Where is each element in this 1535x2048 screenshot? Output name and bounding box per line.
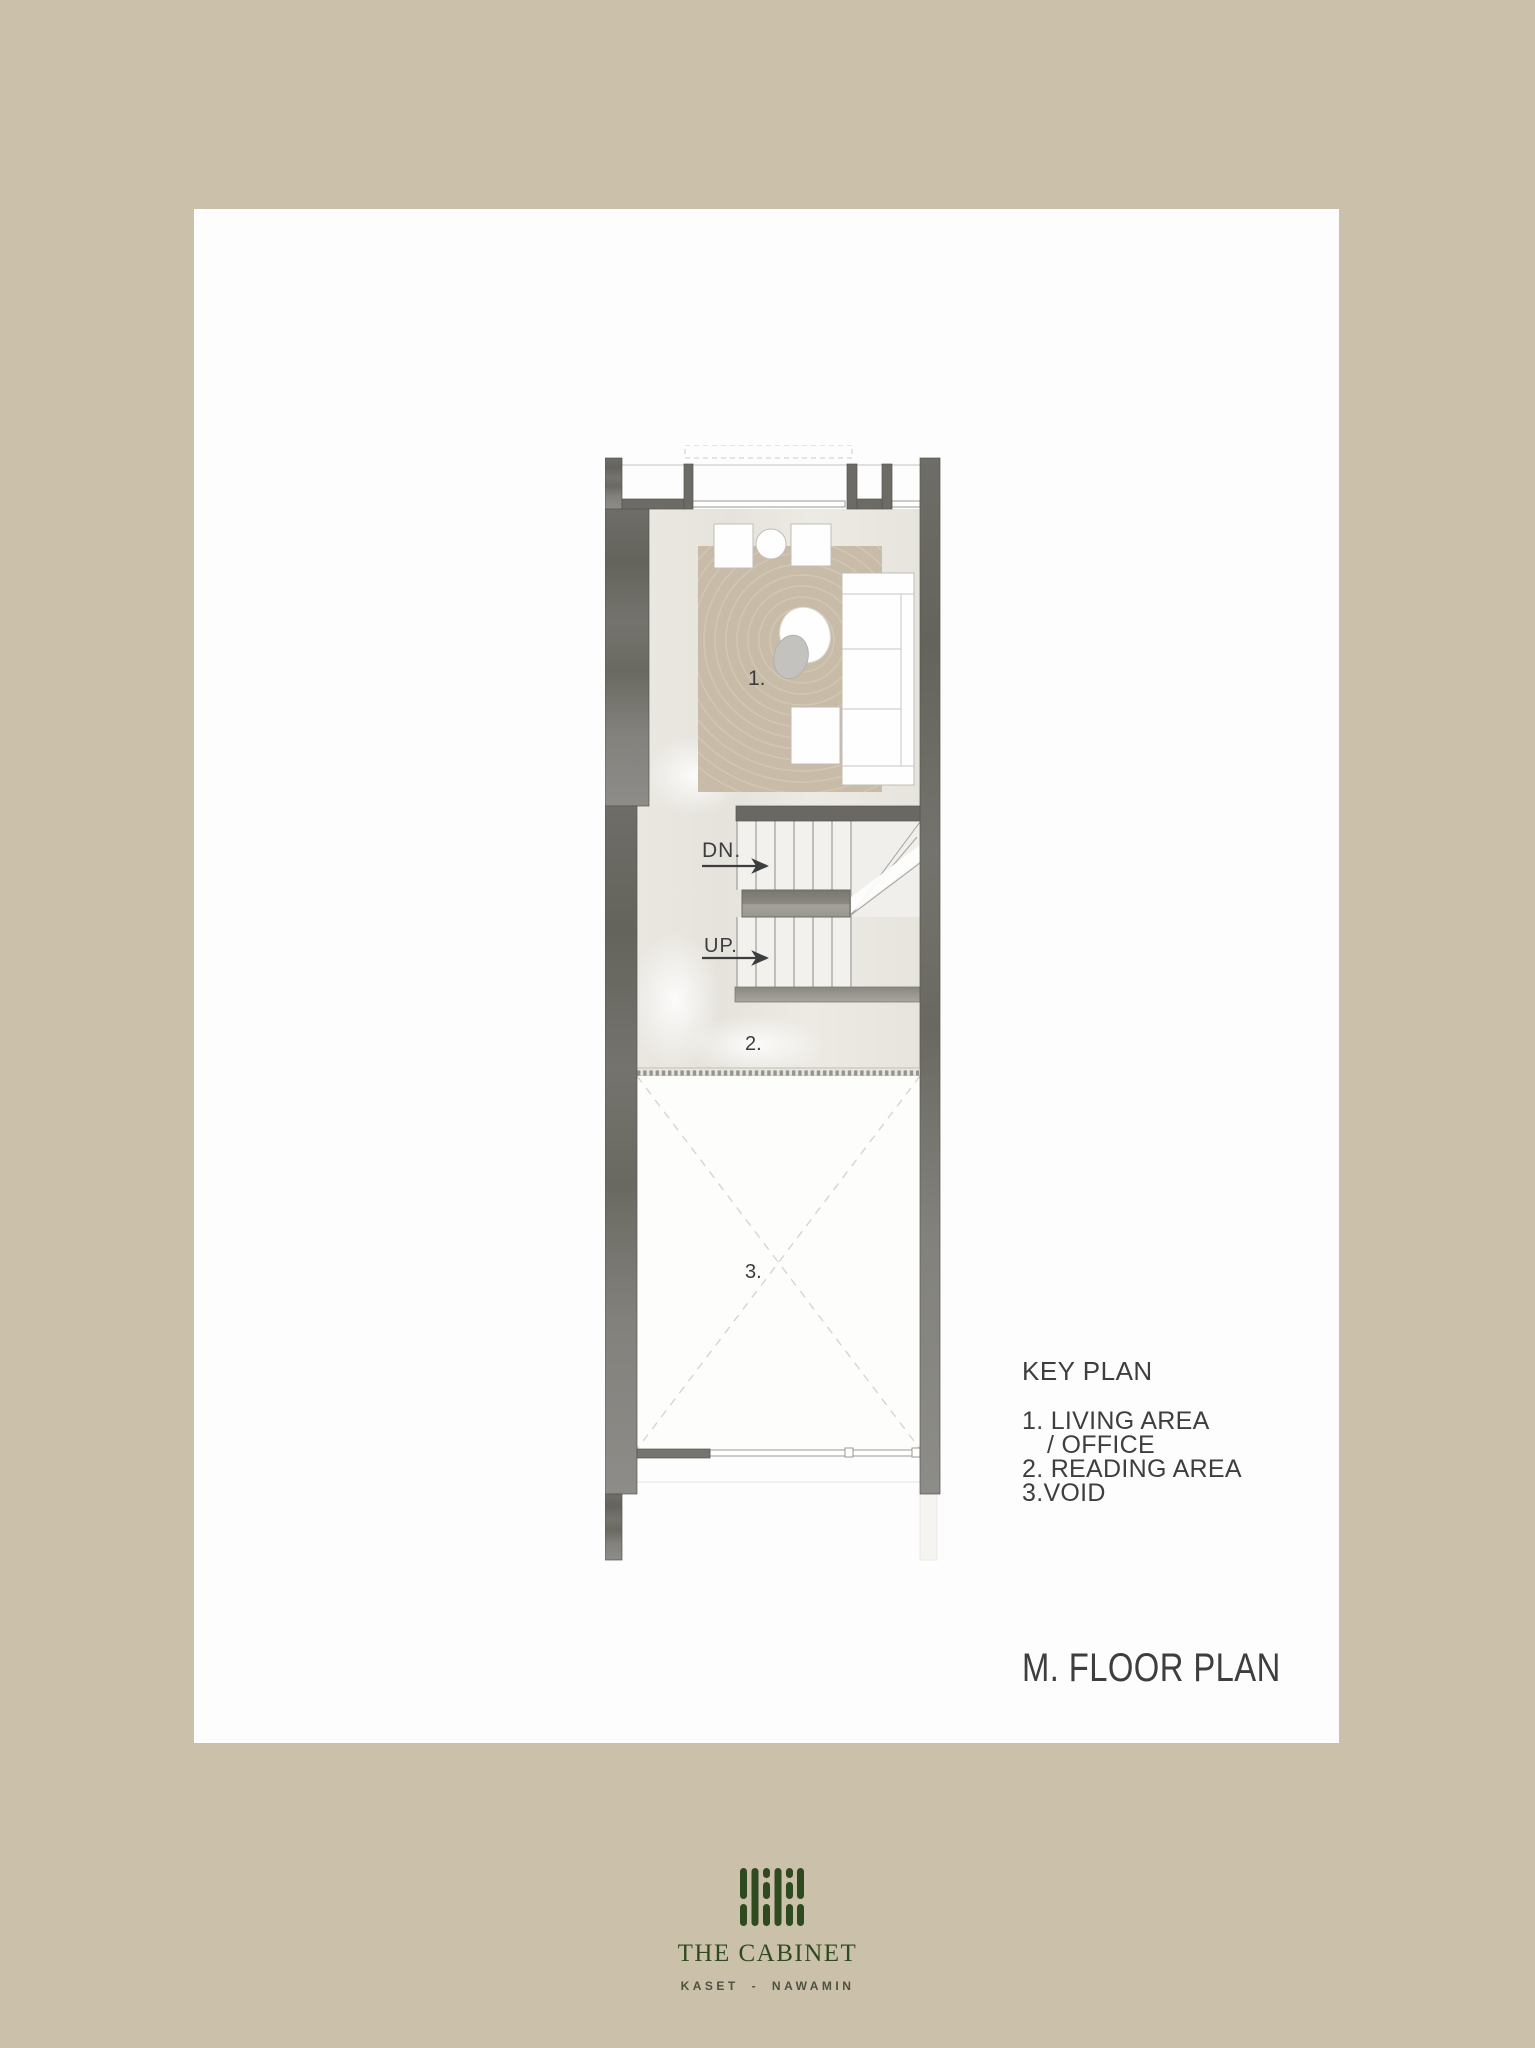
wall-stub-1	[684, 464, 693, 509]
brand-name: THE CABINET	[678, 1940, 858, 1968]
key-plan-title: KEY PLAN	[1022, 1357, 1242, 1385]
stair-bottom-landing	[735, 987, 920, 1002]
area-1-label: 1.	[748, 667, 766, 690]
bottom-wall-stub	[637, 1449, 710, 1458]
desk-chair-right	[791, 524, 831, 566]
cabinet-logo-icon	[740, 1868, 804, 1926]
floor-plan-drawing: DN. UP. 1. 2. 3.	[605, 445, 950, 1565]
area-3-label: 3.	[745, 1261, 762, 1283]
wall-stub-sill	[857, 499, 882, 509]
key-plan: KEY PLAN 1. LIVING AREA / OFFICE 2. READ…	[1022, 1357, 1242, 1505]
down-label: DN.	[702, 839, 741, 862]
sofa	[842, 573, 914, 785]
area-2-label: 2.	[745, 1033, 762, 1055]
stair-landing	[742, 890, 850, 917]
key-plan-item: 1. LIVING AREA	[1022, 1409, 1242, 1433]
ottoman	[791, 707, 840, 764]
left-wall-living	[605, 509, 649, 806]
key-plan-item: 3.VOID	[1022, 1481, 1242, 1505]
brand-location: KASET - NAWAMIN	[681, 1979, 855, 1993]
screen-hatch	[622, 1068, 919, 1076]
key-plan-item: / OFFICE	[1022, 1433, 1242, 1457]
page-background: DN. UP. 1. 2. 3. KEY PLAN 1. LIVING AREA…	[0, 0, 1535, 2048]
key-plan-item: 2. READING AREA	[1022, 1457, 1242, 1481]
left-wall-foot	[605, 1494, 622, 1560]
left-wall-lower	[605, 806, 637, 1494]
desk-chair-left	[714, 524, 753, 568]
right-wall	[920, 458, 940, 1494]
stair-top-wall	[736, 806, 920, 821]
up-label: UP.	[704, 935, 738, 957]
brand-block: THE CABINET KASET - NAWAMIN	[0, 1868, 1535, 1993]
left-wall-top	[605, 458, 622, 509]
wall-stub-3	[882, 464, 892, 509]
sheet-title: M. FLOOR PLAN	[1022, 1646, 1281, 1691]
key-plan-items: 1. LIVING AREA / OFFICE 2. READING AREA …	[1022, 1409, 1242, 1505]
wall-stub-2	[847, 464, 857, 509]
stool	[756, 529, 786, 559]
void-area	[637, 1076, 920, 1482]
window-bay-sill	[622, 499, 684, 509]
